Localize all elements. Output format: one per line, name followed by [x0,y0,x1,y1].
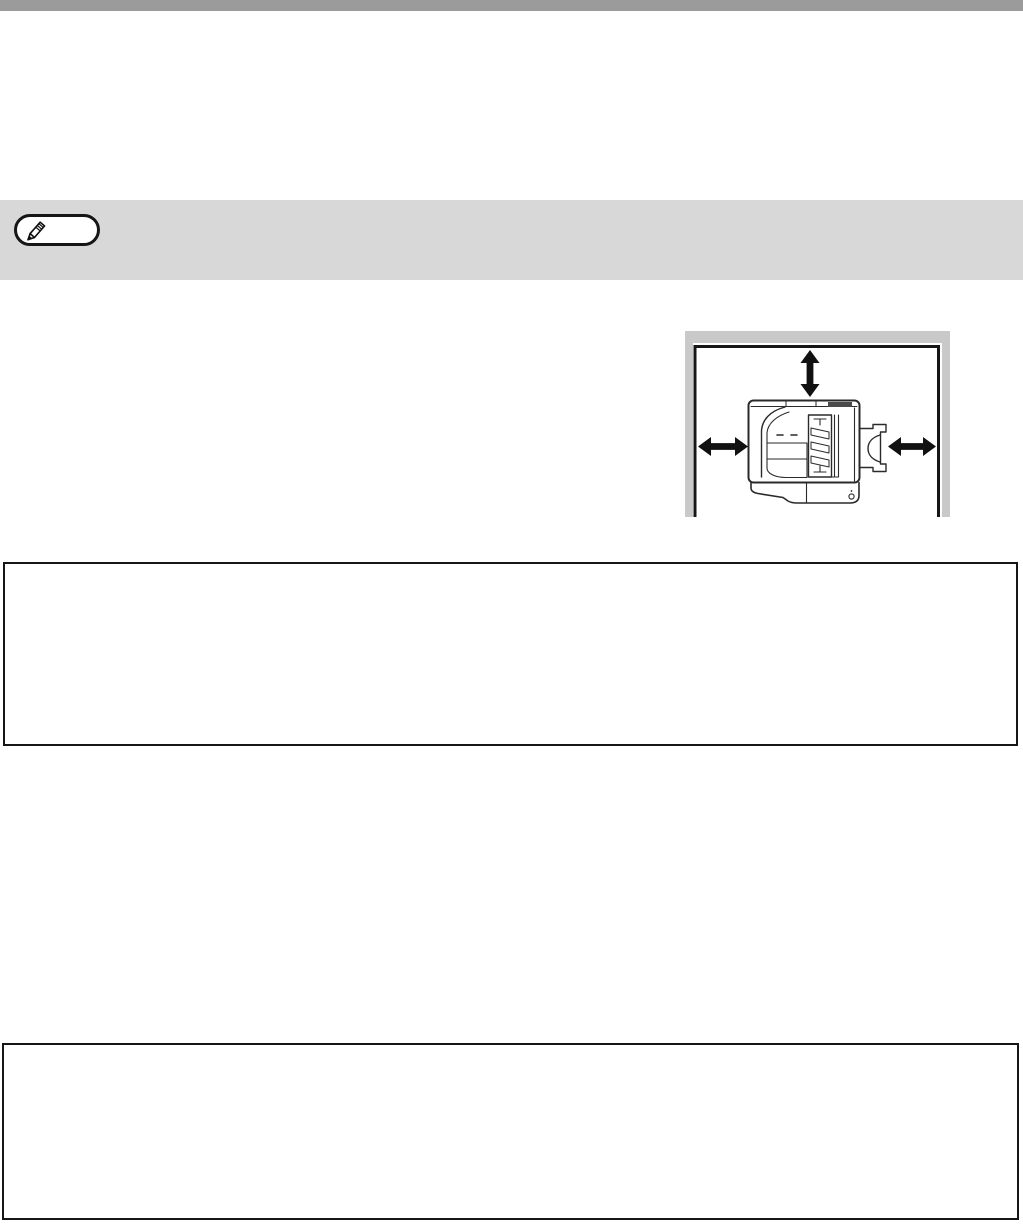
copier-clearance-illustration [685,331,950,517]
left-right-arrow-right-icon [888,437,936,456]
callout-box-1 [3,562,1018,746]
callout-box-2 [2,1043,1019,1220]
note-pill [14,214,100,246]
copier-clearance-svg [685,331,950,517]
wall-top [685,331,950,343]
up-down-arrow-icon [801,350,820,397]
wall-right [942,334,950,517]
note-band [0,200,1023,280]
copier-top-view [749,401,887,504]
manual-page [0,0,1023,1225]
left-right-arrow-left-icon [698,437,748,456]
header-bar [0,0,1023,11]
pencil-icon [22,217,48,243]
control-strip [828,402,852,407]
wall-left [685,334,693,517]
